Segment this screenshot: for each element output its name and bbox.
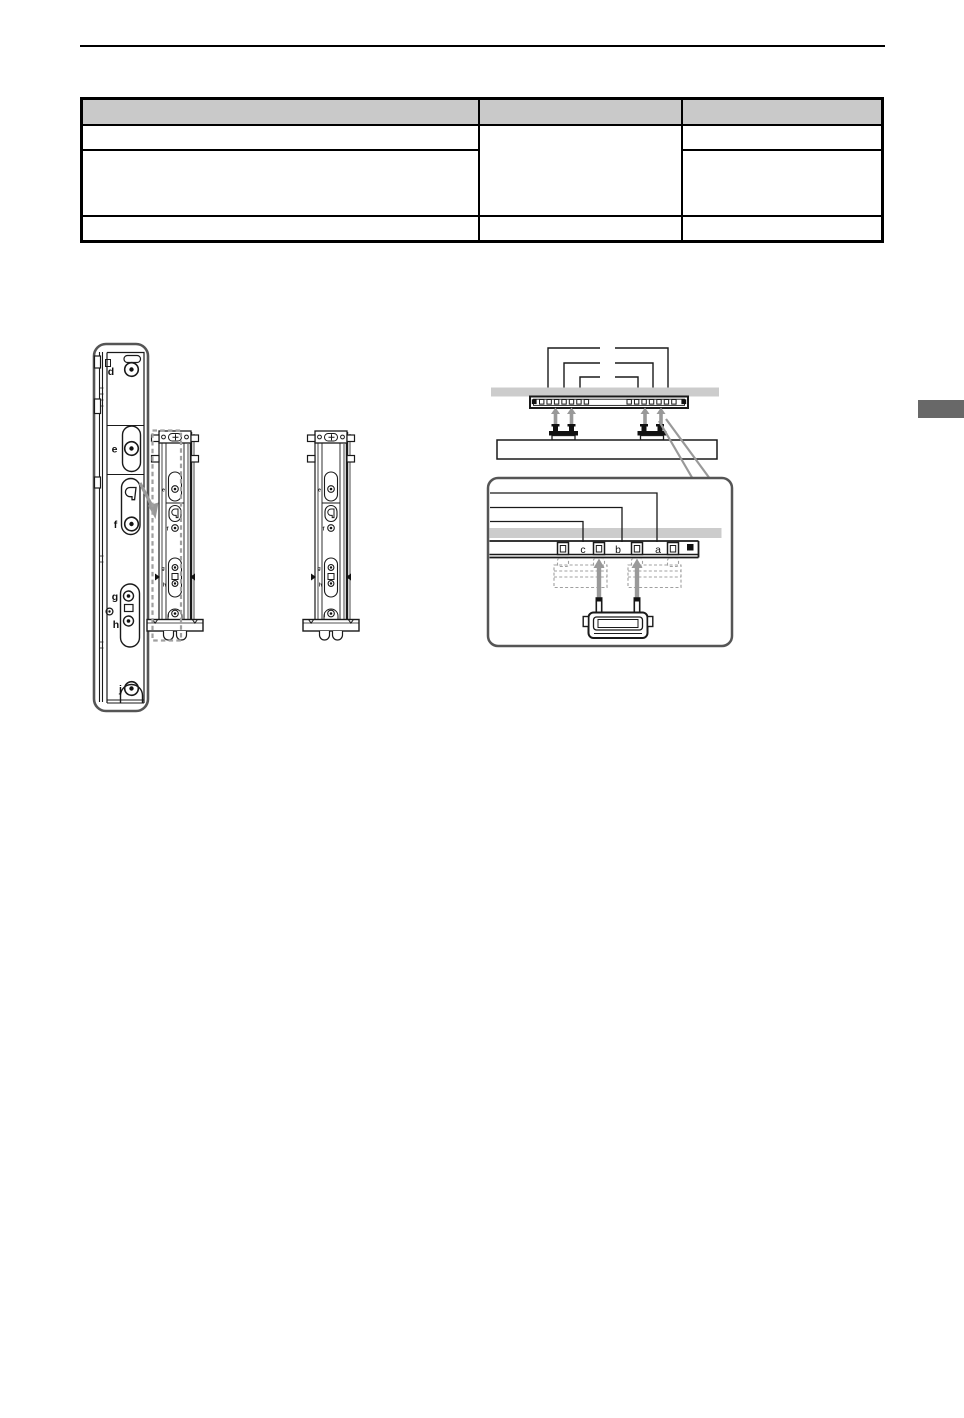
table-header-row (82, 99, 883, 126)
label-b: b (615, 544, 621, 556)
tv-edge-shaded-band (491, 388, 719, 397)
page-edge-section-tab (918, 400, 964, 418)
table-header-cell (479, 99, 682, 126)
tv-mount-hook-diagram: c b a (485, 340, 740, 660)
bracket-front-view (147, 431, 203, 640)
side-tab (95, 477, 101, 488)
side-tab (95, 356, 101, 368)
table-cell-merged (479, 125, 682, 216)
table-cell (682, 150, 883, 216)
page-top-rule (80, 45, 885, 47)
table-cell (479, 216, 682, 242)
label-f: f (114, 519, 118, 531)
table-cell (82, 150, 479, 216)
manual-page: e f g h j (0, 0, 964, 1418)
bracket-front-view (303, 431, 359, 640)
label-d: d (108, 366, 114, 378)
table-row (82, 216, 883, 242)
insert-direction-arrows (551, 408, 666, 427)
bracket-hole-locations-diagram: e f g h j (85, 335, 377, 725)
side-tab (95, 399, 101, 414)
tv-edge-shaded-band (490, 528, 722, 538)
label-c: c (580, 544, 585, 556)
table-row (82, 125, 883, 150)
label-a: a (655, 544, 661, 556)
mount-hook (549, 424, 578, 440)
table-cell (82, 216, 479, 242)
label-e: e (112, 444, 118, 456)
label-h: h (113, 619, 119, 631)
mounting-rail (530, 397, 688, 409)
label-g: g (112, 591, 118, 603)
table-header-cell (82, 99, 479, 126)
table-cell (82, 125, 479, 150)
label-j: j (118, 684, 122, 696)
spec-table (80, 97, 884, 243)
table-cell (682, 216, 883, 242)
table-header-cell (682, 99, 883, 126)
table-cell (682, 125, 883, 150)
